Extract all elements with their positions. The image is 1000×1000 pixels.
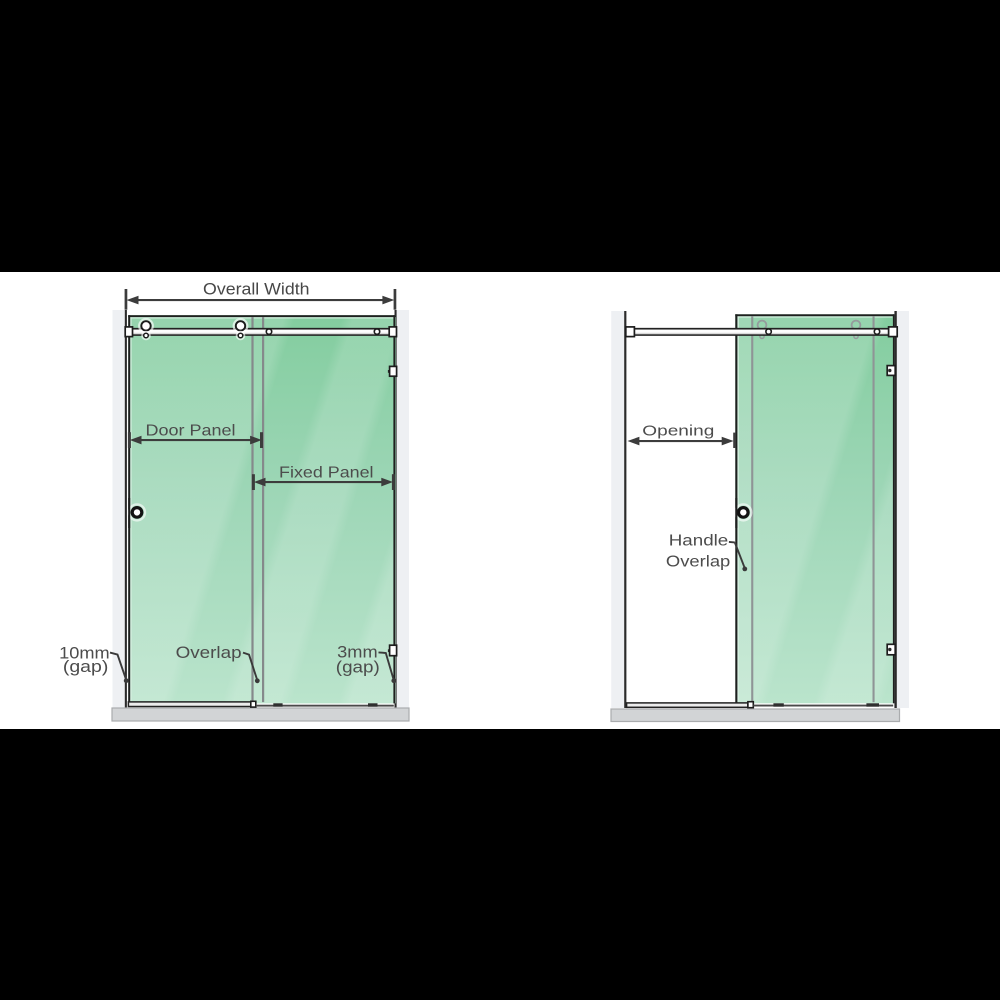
svg-text:Fixed Panel: Fixed Panel [279,465,374,482]
svg-text:Opening: Opening [642,422,714,439]
svg-text:Overlap: Overlap [666,554,730,571]
svg-text:(gap): (gap) [336,659,380,677]
svg-text:(gap): (gap) [63,658,109,676]
svg-text:Overall Width: Overall Width [203,280,310,298]
svg-text:Handle: Handle [669,533,729,550]
svg-text:Door Panel: Door Panel [146,422,236,439]
svg-text:Overlap: Overlap [176,644,242,662]
